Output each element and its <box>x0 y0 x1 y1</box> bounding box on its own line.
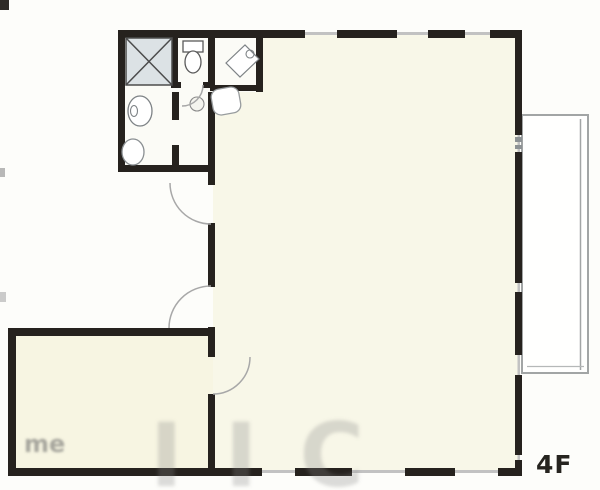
wall-right <box>515 30 522 476</box>
balcony <box>522 115 588 373</box>
balcony-outline <box>522 115 588 373</box>
window-tick <box>515 145 522 149</box>
floor-label: 4F <box>536 450 572 479</box>
floor-plan: IIC me 4F <box>0 0 600 490</box>
kitchen-sink <box>210 86 242 116</box>
window-tick <box>515 137 522 142</box>
toilet-bowl <box>185 51 201 73</box>
washbasin <box>128 96 152 126</box>
watermark-large: IIC <box>150 404 406 490</box>
toilet <box>183 41 203 73</box>
bathtub <box>126 38 172 85</box>
floor-plan-drawing: IIC me 4F <box>0 0 600 490</box>
laundry-space <box>122 139 144 165</box>
watermark-small: me <box>24 430 65 458</box>
